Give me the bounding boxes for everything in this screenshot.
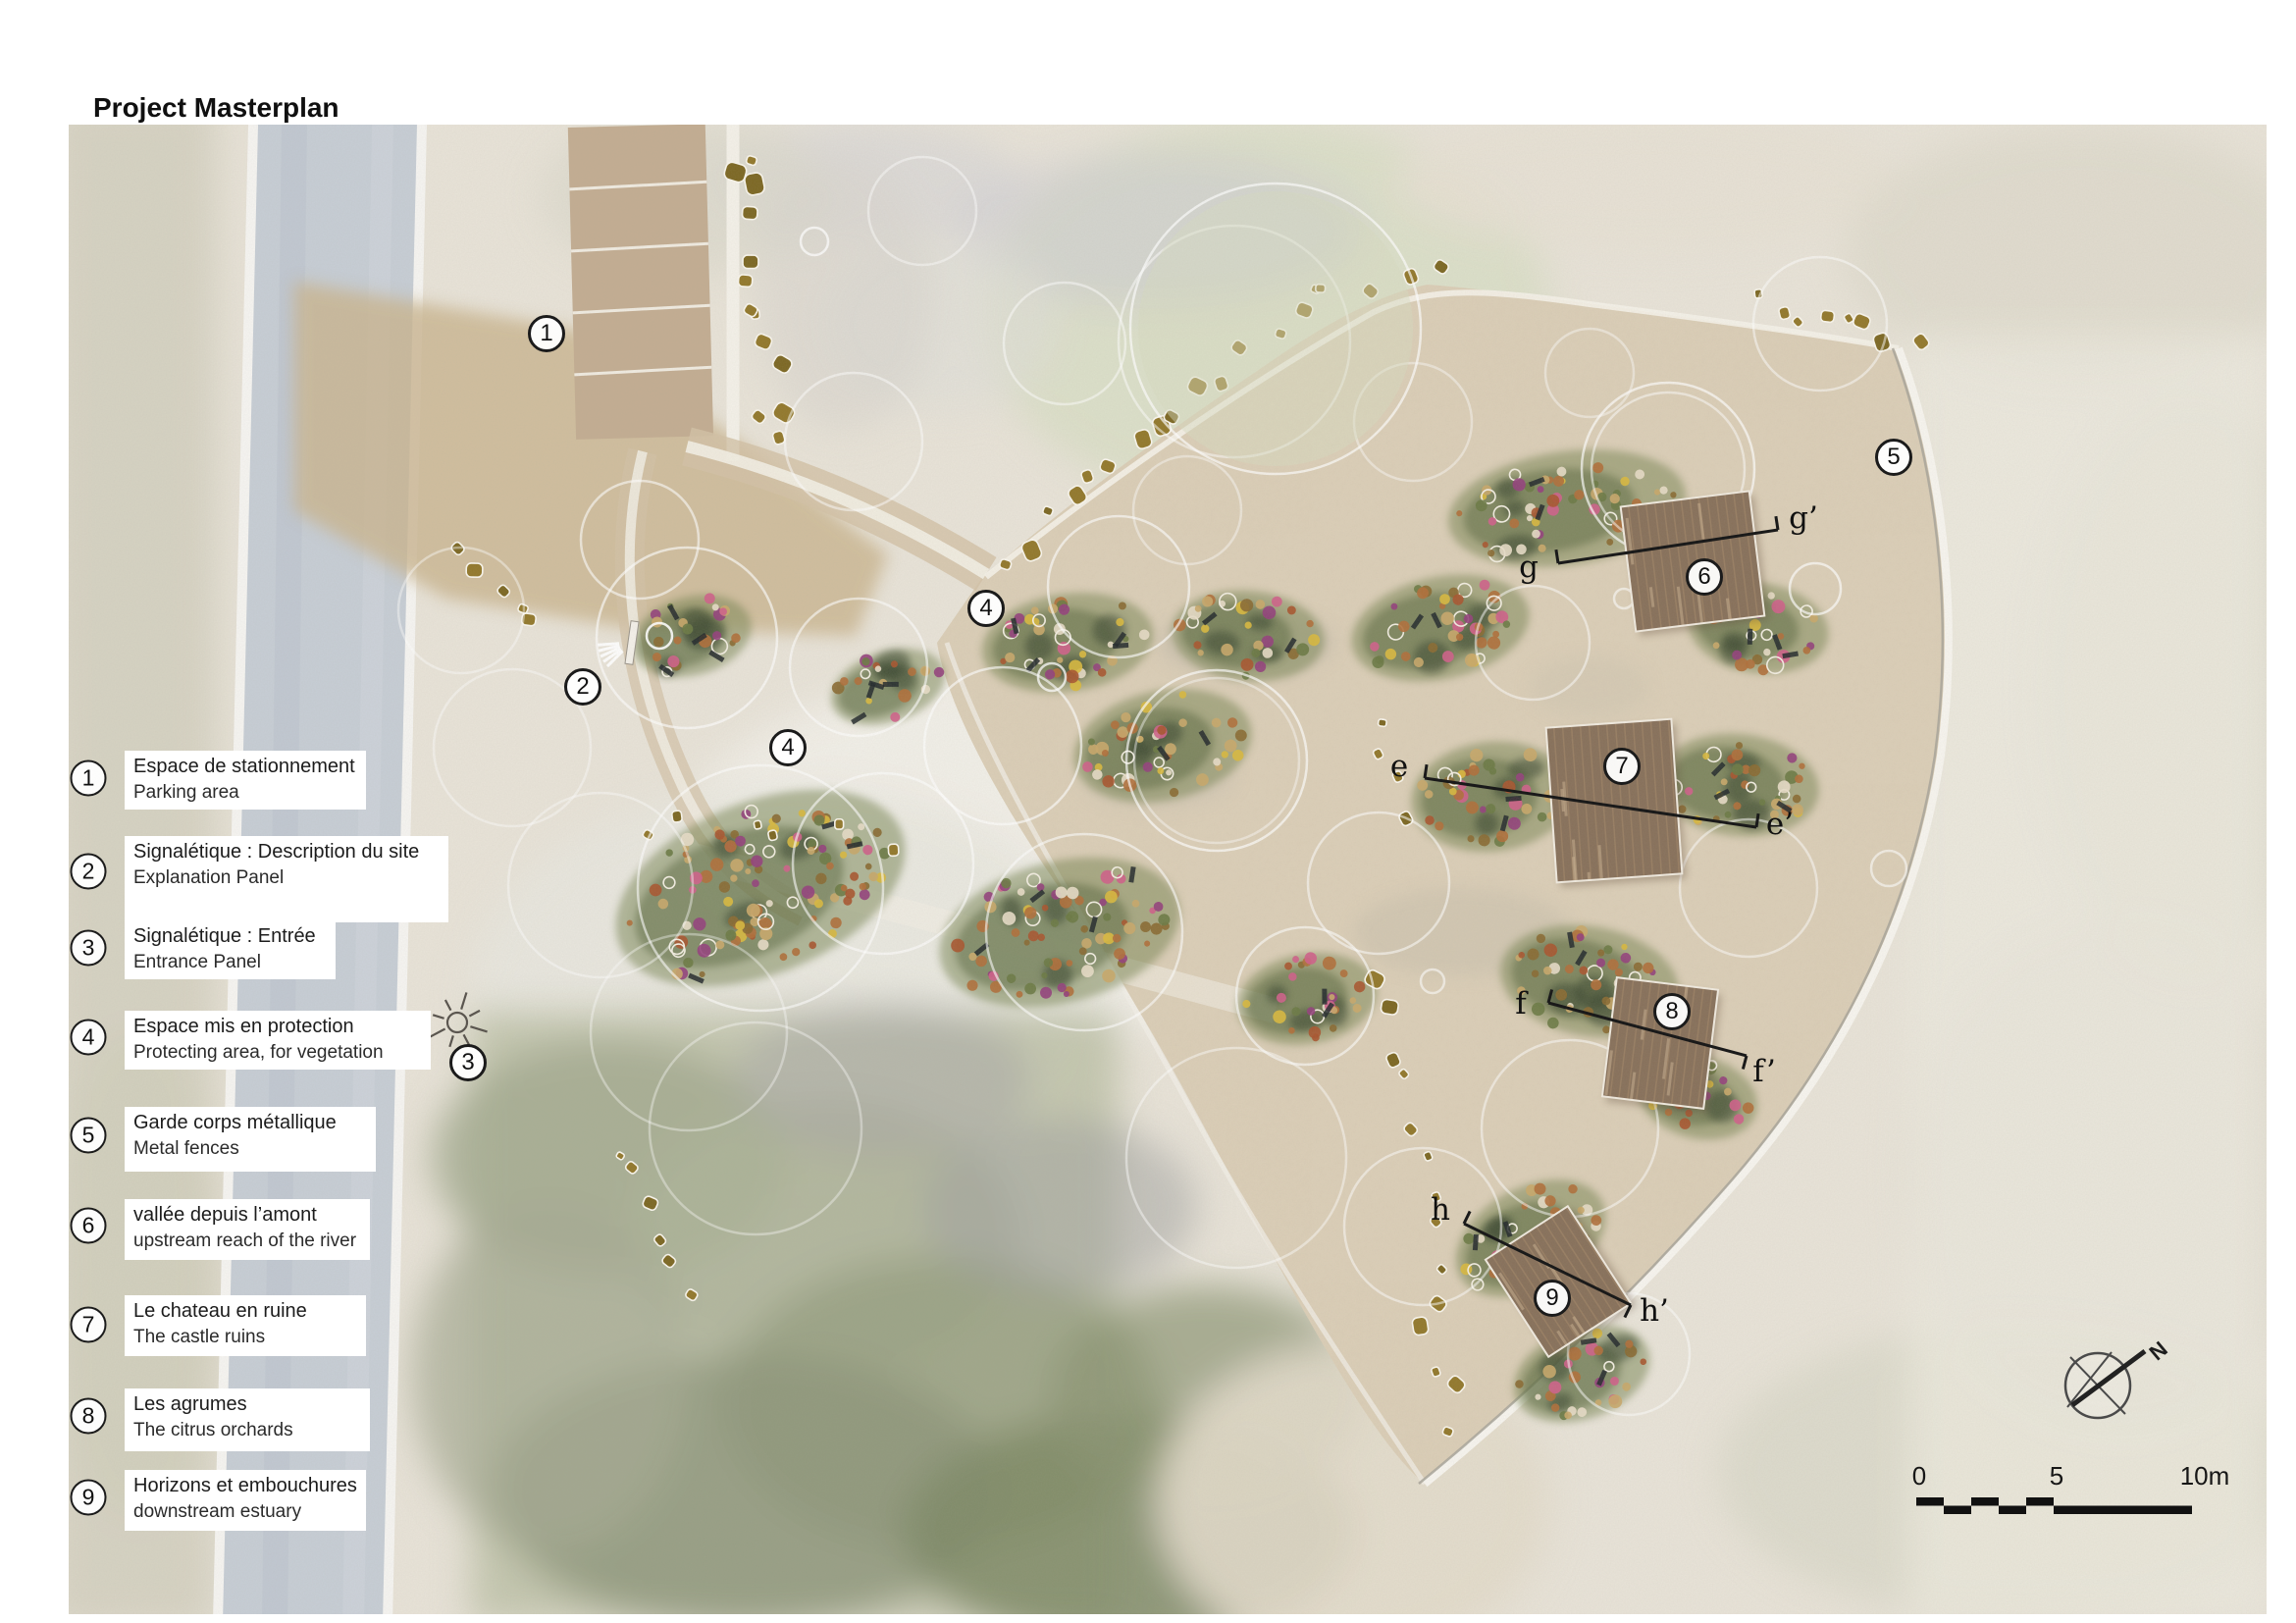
legend-number-6: 6 [71,1208,107,1244]
legend-number-8: 8 [71,1398,107,1435]
legend-text-fr: Le chateau en ruine [133,1298,357,1325]
legend-item-6: vallée depuis l’amontupstream reach of t… [125,1199,370,1260]
section-label-g: g [1519,550,1539,585]
plan-marker-7: 7 [1603,748,1641,785]
legend-text-en: Explanation Panel [133,865,440,891]
scale-label-10m: 10m [2180,1461,2230,1492]
legend-text-en: Metal fences [133,1136,367,1162]
section-label-f: f [1515,986,1526,1021]
section-label-e: e [1390,749,1408,784]
plan-marker-3: 3 [449,1044,487,1081]
legend-item-2: Signalétique : Description du siteExplan… [125,836,448,922]
legend-text-en: downstream estuary [133,1499,357,1525]
legend-text-fr: Signalétique : Entrée [133,923,327,950]
scale-label-0: 0 [1912,1461,1926,1492]
legend-number-1: 1 [71,760,107,797]
section-label-h: h [1431,1192,1450,1228]
scale-label-5: 5 [2050,1461,2063,1492]
legend-text-fr: Horizons et embouchures [133,1473,357,1499]
masterplan-page: Project Masterplan 1Espace de stationnem… [0,0,2296,1623]
legend-text-fr: Les agrumes [133,1391,361,1418]
legend-text-fr: vallée depuis l’amont [133,1202,361,1229]
section-label-h-prime: h’ [1640,1293,1669,1329]
legend-number-3: 3 [71,930,107,967]
legend-text-fr: Signalétique : Description du site [133,839,440,865]
plan-marker-1: 1 [528,315,565,352]
legend-number-4: 4 [71,1020,107,1056]
legend-item-4: Espace mis en protectionProtecting area,… [125,1011,431,1070]
legend-text-en: The castle ruins [133,1325,357,1350]
section-label-f-prime: f’ [1752,1054,1776,1089]
plan-marker-5: 5 [1875,439,1912,476]
legend-item-9: Horizons et embouchuresdownstream estuar… [125,1470,366,1531]
legend-number-7: 7 [71,1307,107,1343]
legend-number-5: 5 [71,1118,107,1154]
legend-text-en: The citrus orchards [133,1418,361,1443]
legend-text-en: upstream reach of the river [133,1229,361,1254]
section-label-e-prime: e’ [1766,807,1794,842]
plan-marker-9: 9 [1534,1280,1571,1317]
legend-text-en: Entrance Panel [133,950,327,975]
plan-marker-8: 8 [1653,993,1691,1030]
legend-text-en: Parking area [133,780,357,806]
section-label-g-prime: g’ [1789,500,1818,536]
plan-marker-6: 6 [1686,558,1723,596]
legend-item-1: Espace de stationnementParking area [125,751,366,810]
legend-text-fr: Espace de stationnement [133,754,357,780]
legend-item-3: Signalétique : EntréeEntrance Panel [125,920,336,979]
plan-marker-4: 4 [967,590,1005,627]
legend-text-en: Protecting area, for vegetation [133,1040,422,1066]
legend-item-5: Garde corps métalliqueMetal fences [125,1107,376,1172]
page-title: Project Masterplan [93,92,339,124]
plan-marker-2: 2 [564,668,601,706]
legend-number-9: 9 [71,1480,107,1516]
legend-text-fr: Espace mis en protection [133,1014,422,1040]
plan-marker-4: 4 [769,729,807,766]
legend-text-fr: Garde corps métallique [133,1110,367,1136]
legend-number-2: 2 [71,854,107,890]
site-plan-drawing [0,0,2296,1623]
legend-item-8: Les agrumesThe citrus orchards [125,1388,370,1451]
legend-item-7: Le chateau en ruineThe castle ruins [125,1295,366,1356]
